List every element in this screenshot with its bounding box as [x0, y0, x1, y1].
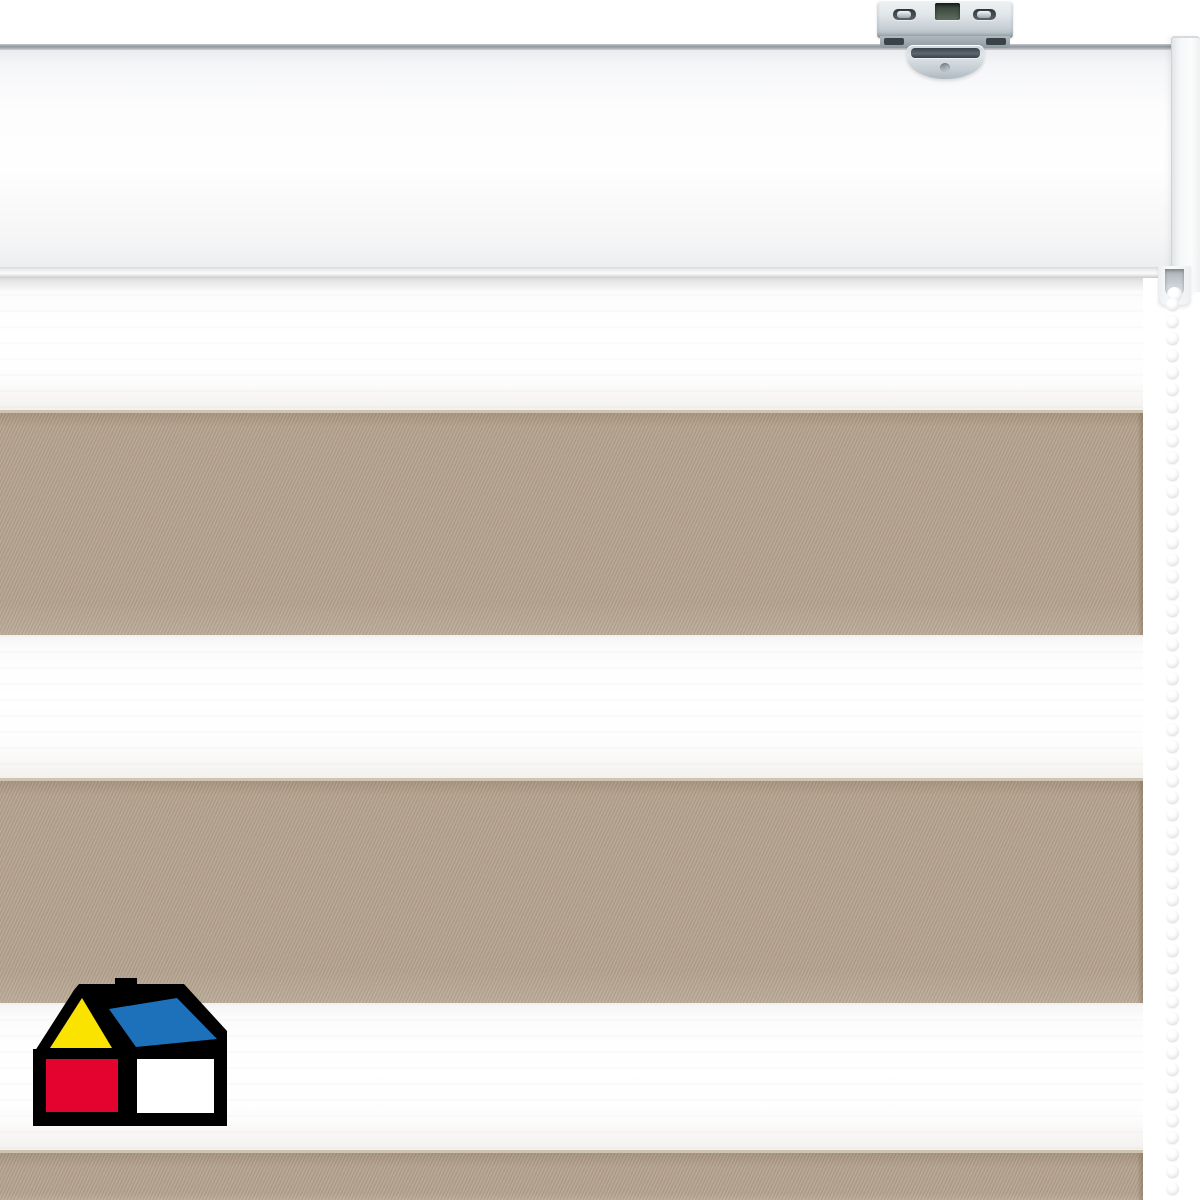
chain-bead: [1166, 825, 1179, 838]
chain-bead: [1166, 1182, 1179, 1195]
bracket-center-hole: [935, 3, 960, 20]
chain-bead: [1166, 434, 1179, 447]
bracket-screw-slot-right: [973, 9, 996, 20]
chain-bead: [1166, 1063, 1179, 1076]
bracket-clip-hole: [940, 63, 950, 72]
chain-bead: [1166, 1148, 1179, 1161]
chain-bead: [1166, 298, 1179, 311]
chain-bead: [1166, 808, 1179, 821]
chain-bead: [1166, 332, 1179, 345]
chain-bead: [1166, 1114, 1179, 1127]
chain-bead: [1166, 1012, 1179, 1025]
chain-bead: [1166, 485, 1179, 498]
chain-bead: [1166, 723, 1179, 736]
product-photo: [0, 0, 1200, 1200]
chain-bead: [1166, 978, 1179, 991]
bracket-plate: [877, 0, 1013, 38]
headrail-bottom-lip: [0, 267, 1178, 278]
chain-bead: [1166, 1046, 1179, 1059]
fabric-stripe-sheer: [0, 635, 1143, 778]
chain-bead: [1166, 621, 1179, 634]
chain-bead: [1166, 383, 1179, 396]
sodimac-logo: [33, 978, 228, 1128]
chain-bead: [1166, 774, 1179, 787]
chain-bead: [1166, 587, 1179, 600]
fabric-stripe-solid: [0, 1150, 1143, 1200]
chain-bead: [1166, 502, 1179, 515]
headrail-shadow: [0, 278, 1143, 292]
chain-bead: [1166, 349, 1179, 362]
chain-bead: [1166, 1097, 1179, 1110]
fabric-stripe-solid: [0, 778, 1143, 1003]
bracket-notch-left: [884, 38, 904, 45]
chain-bead: [1166, 1165, 1179, 1178]
chain-bead: [1166, 842, 1179, 855]
bracket-notch-right: [986, 38, 1006, 45]
chain-bead: [1166, 672, 1179, 685]
chain-bead: [1166, 570, 1179, 583]
chain-bead: [1166, 400, 1179, 413]
chain-bead: [1166, 536, 1179, 549]
bracket-screw-slot-left: [893, 9, 916, 20]
chain-bead: [1166, 468, 1179, 481]
chain-bead: [1166, 519, 1179, 532]
screw-icon: [897, 11, 911, 18]
chain-bead: [1166, 995, 1179, 1008]
chain-bead: [1166, 1131, 1179, 1144]
headrail-endcap: [1171, 36, 1200, 292]
chain-bead: [1166, 961, 1179, 974]
chain-pulley-slot: [1165, 269, 1184, 298]
chain-bead: [1166, 876, 1179, 889]
fabric-stripe-sheer: [0, 278, 1143, 410]
logo-wall-white: [137, 1059, 214, 1113]
chain-bead: [1166, 638, 1179, 651]
chain-bead: [1166, 757, 1179, 770]
chain-bead: [1166, 740, 1179, 753]
chain-bead: [1166, 315, 1179, 328]
chain-bead: [1166, 417, 1179, 430]
bracket-clip-slot: [911, 48, 980, 58]
chain-bead: [1166, 910, 1179, 923]
mounting-bracket: [877, 0, 1013, 84]
chain-bead: [1166, 706, 1179, 719]
chain-bead: [1166, 791, 1179, 804]
bracket-front-clip: [907, 45, 984, 79]
chain-bead: [1166, 553, 1179, 566]
bead-chain: [1165, 298, 1179, 1200]
sodimac-house-icon: [33, 978, 228, 1128]
chain-bead: [1166, 1080, 1179, 1093]
chain-bead: [1166, 604, 1179, 617]
chain-bead: [1166, 859, 1179, 872]
chain-bead: [1166, 1029, 1179, 1042]
chain-bead: [1166, 366, 1179, 379]
chain-bead: [1166, 655, 1179, 668]
chain-bead: [1166, 451, 1179, 464]
chain-bead: [1166, 927, 1179, 940]
chain-bead: [1166, 893, 1179, 906]
screw-icon: [977, 11, 991, 18]
logo-wall-red: [46, 1059, 118, 1112]
chain-bead: [1166, 944, 1179, 957]
chain-bead: [1166, 689, 1179, 702]
fabric-stripe-solid: [0, 410, 1143, 635]
